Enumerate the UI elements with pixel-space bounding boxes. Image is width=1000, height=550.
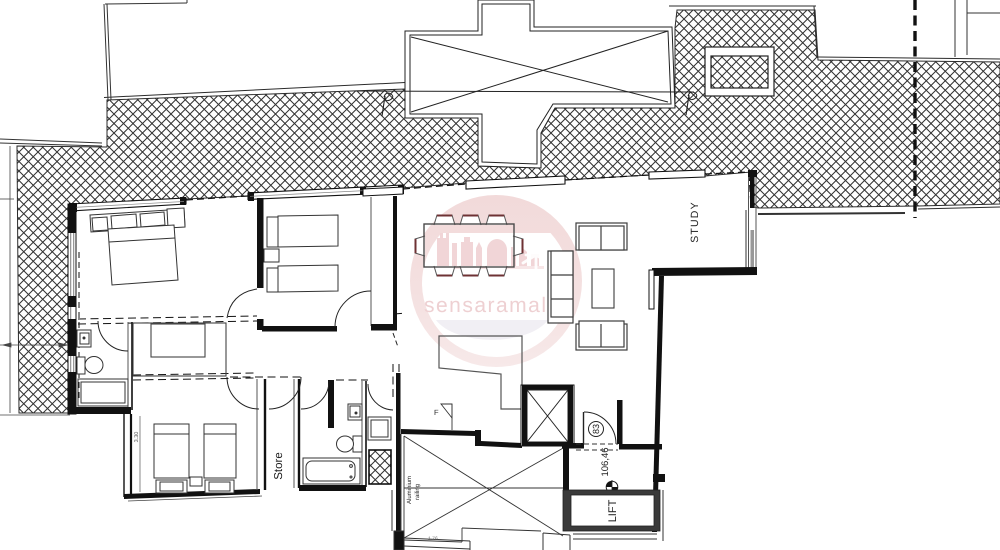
- svg-text:Aluminium: Aluminium: [406, 476, 413, 504]
- svg-text:sensaramalta: sensaramalta: [424, 294, 568, 317]
- svg-text:LIFT: LIFT: [607, 499, 619, 522]
- svg-text:Store: Store: [273, 452, 285, 480]
- svg-text:106,46: 106,46: [600, 447, 611, 476]
- svg-text:STUDY: STUDY: [689, 201, 701, 243]
- svg-text:railing: railing: [414, 484, 421, 500]
- svg-text:F: F: [434, 408, 439, 417]
- svg-text:1.76: 1.76: [428, 536, 438, 542]
- svg-text:3.30: 3.30: [134, 432, 140, 443]
- svg-text:83: 83: [591, 424, 601, 434]
